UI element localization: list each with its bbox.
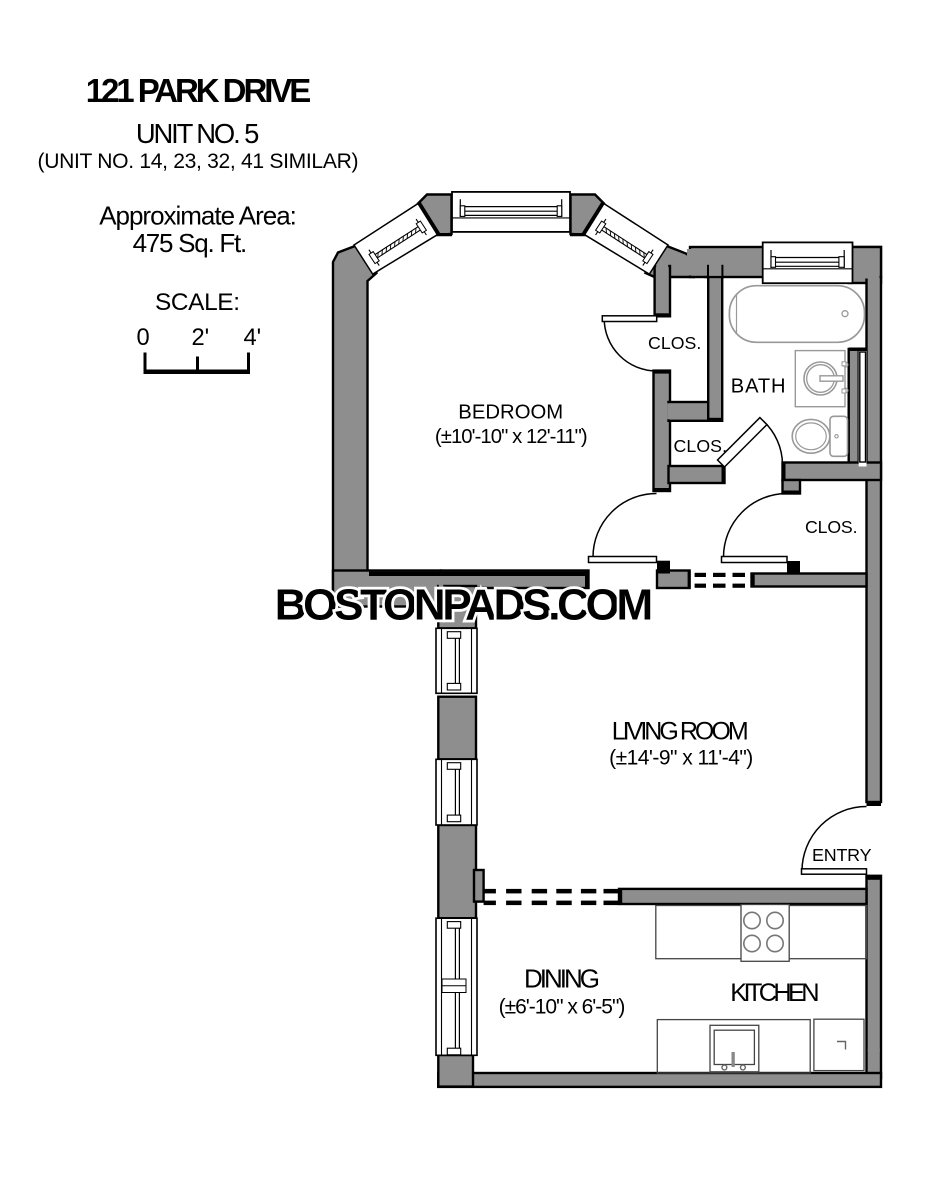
svg-text:(±10'-10" x 12'-11"): (±10'-10" x 12'-11") <box>435 426 588 448</box>
svg-text:4': 4' <box>244 325 262 351</box>
svg-text:BEDROOM: BEDROOM <box>458 401 563 423</box>
svg-text:475 Sq. Ft.: 475 Sq. Ft. <box>133 228 248 258</box>
svg-text:DINING: DINING <box>524 964 600 994</box>
svg-text:UNIT NO. 5: UNIT NO. 5 <box>136 118 259 149</box>
svg-text:CLOS.: CLOS. <box>805 517 858 537</box>
svg-text:ENTRY: ENTRY <box>812 845 872 865</box>
svg-text:Approximate Area:: Approximate Area: <box>99 201 297 231</box>
svg-text:KITCHEN: KITCHEN <box>730 979 819 1007</box>
svg-text:(UNIT NO. 14, 23, 32, 41 SIMIL: (UNIT NO. 14, 23, 32, 41 SIMILAR) <box>38 150 359 173</box>
svg-text:(±6'-10" x 6'-5"): (±6'-10" x 6'-5") <box>499 996 626 1019</box>
svg-text:BATH: BATH <box>731 375 786 397</box>
svg-text:LIVING ROOM: LIVING ROOM <box>612 718 749 746</box>
svg-text:121 PARK DRIVE: 121 PARK DRIVE <box>86 72 312 109</box>
svg-text:SCALE:: SCALE: <box>155 289 240 316</box>
svg-text:0: 0 <box>137 325 150 351</box>
svg-text:BOSTONPADS.COM: BOSTONPADS.COM <box>275 581 654 630</box>
svg-text:2': 2' <box>192 325 210 351</box>
svg-text:CLOS.: CLOS. <box>648 333 701 353</box>
svg-text:CLOS.: CLOS. <box>674 436 728 456</box>
svg-text:(±14'-9" x 11'-4"): (±14'-9" x 11'-4") <box>609 747 753 770</box>
